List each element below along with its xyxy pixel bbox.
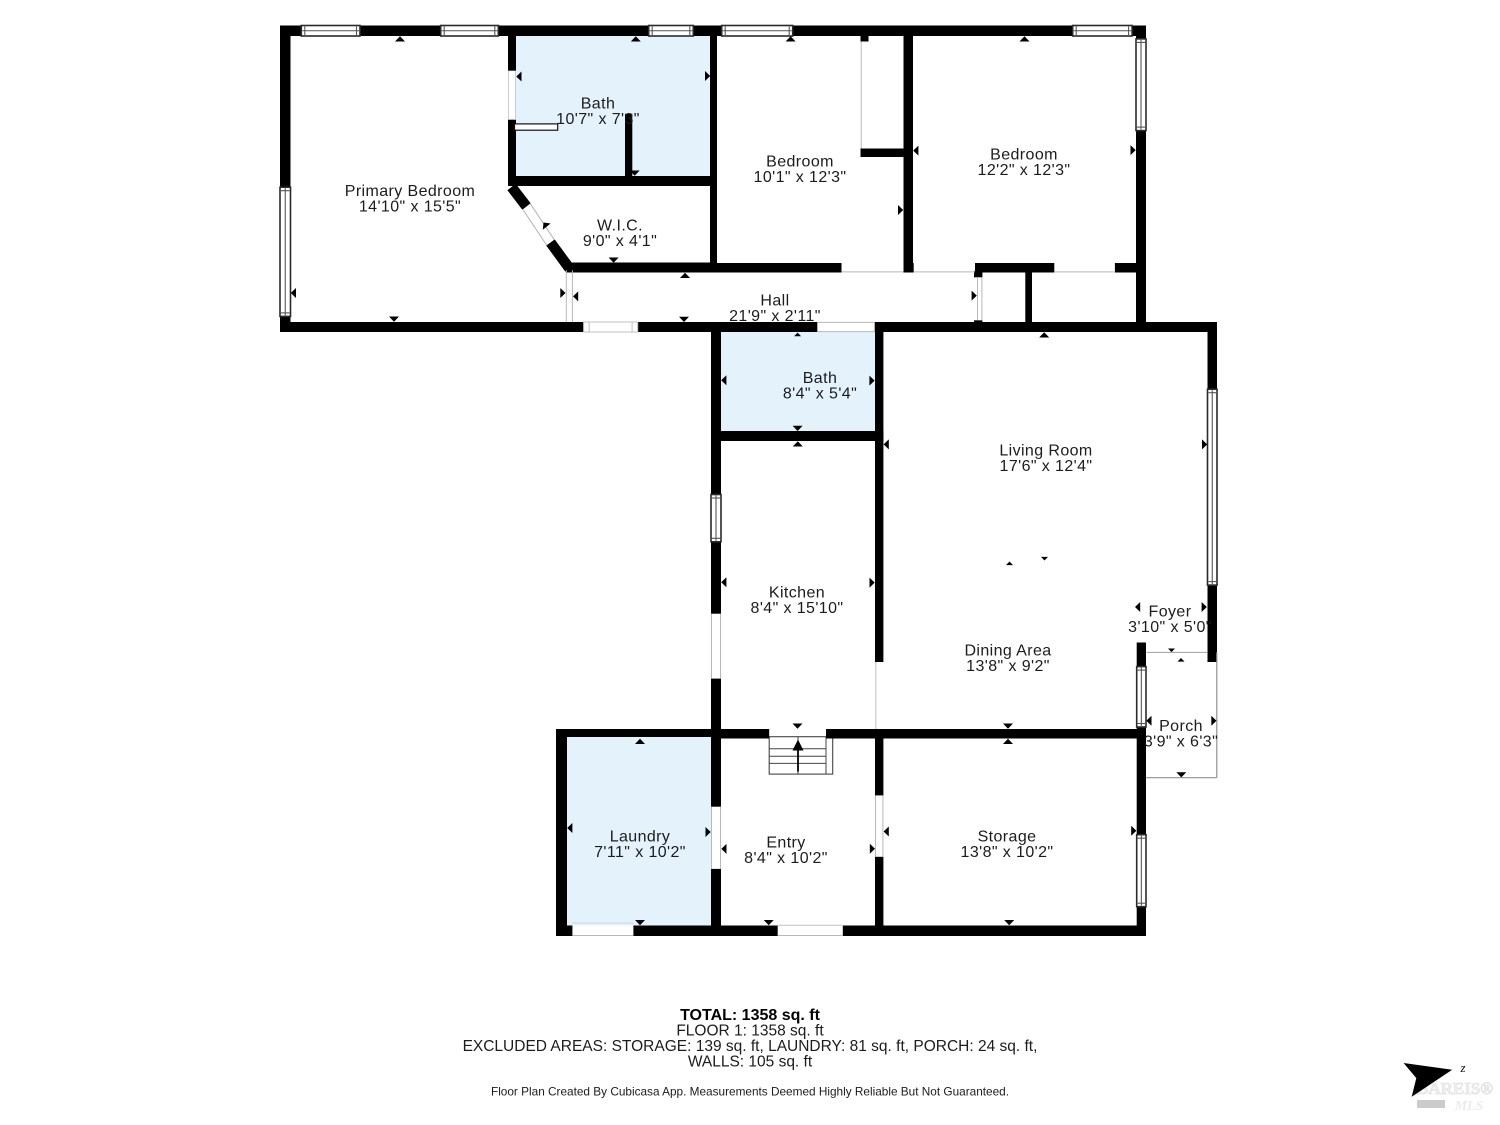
svg-text:MLS: MLS bbox=[1454, 1099, 1484, 1114]
svg-text:8'4" x 5'4": 8'4" x 5'4" bbox=[783, 385, 857, 402]
svg-text:3'9" x 6'3": 3'9" x 6'3" bbox=[1144, 733, 1218, 750]
svg-text:3'10" x 5'0": 3'10" x 5'0" bbox=[1128, 619, 1212, 636]
svg-text:z: z bbox=[1460, 1060, 1466, 1075]
svg-text:14'10" x 15'5": 14'10" x 15'5" bbox=[359, 198, 461, 215]
svg-text:9'0" x 4'1": 9'0" x 4'1" bbox=[583, 233, 657, 250]
svg-text:17'6" x 12'4": 17'6" x 12'4" bbox=[1000, 458, 1093, 475]
svg-text:Floor Plan Created By Cubicasa: Floor Plan Created By Cubicasa App. Meas… bbox=[491, 1085, 1009, 1099]
svg-text:21'9" x 2'11": 21'9" x 2'11" bbox=[729, 308, 821, 325]
svg-text:13'8" x 10'2": 13'8" x 10'2" bbox=[961, 844, 1054, 861]
svg-text:8'4" x 15'10": 8'4" x 15'10" bbox=[751, 600, 844, 617]
svg-text:8'4" x 10'2": 8'4" x 10'2" bbox=[744, 850, 828, 867]
svg-text:WALLS: 105 sq. ft: WALLS: 105 sq. ft bbox=[688, 1054, 813, 1071]
svg-text:TOTAL: 1358 sq. ft: TOTAL: 1358 sq. ft bbox=[680, 1007, 821, 1024]
svg-text:EXCLUDED AREAS: STORAGE: 139 s: EXCLUDED AREAS: STORAGE: 139 sq. ft, LAU… bbox=[463, 1038, 1038, 1055]
svg-text:7'11" x 10'2": 7'11" x 10'2" bbox=[594, 844, 686, 861]
svg-text:12'2" x 12'3": 12'2" x 12'3" bbox=[978, 162, 1071, 179]
svg-text:10'7" x 7'3": 10'7" x 7'3" bbox=[556, 111, 640, 128]
svg-text:10'1" x 12'3": 10'1" x 12'3" bbox=[754, 169, 847, 186]
svg-text:FLOOR 1: 1358 sq. ft: FLOOR 1: 1358 sq. ft bbox=[676, 1023, 824, 1040]
svg-text:13'8" x 9'2": 13'8" x 9'2" bbox=[966, 658, 1050, 675]
